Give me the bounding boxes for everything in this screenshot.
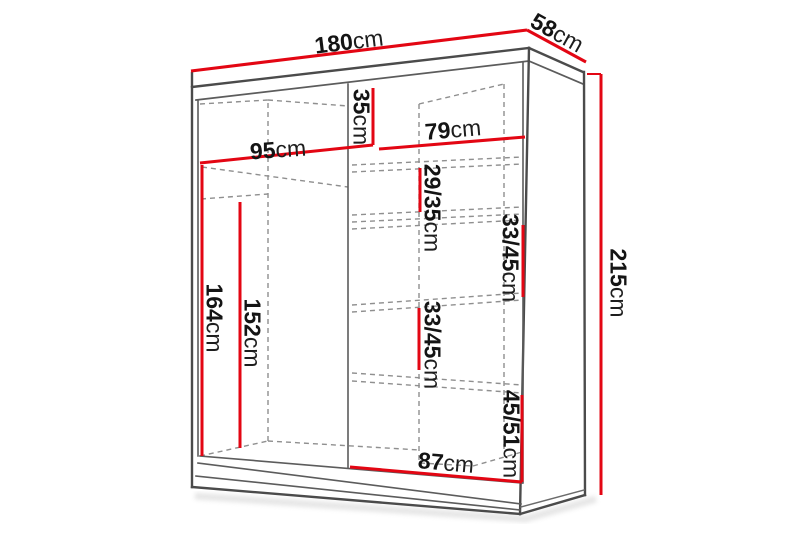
dim-label-shelf-gap-1: 29/35cm [421, 164, 444, 252]
dim-label-right-section-top-width: 79cm [424, 116, 482, 144]
dim-label-height: 215cm [607, 248, 630, 317]
dim-label-left-section-clear-height: 164cm [203, 283, 226, 352]
dim-label-left-section-width: 95cm [249, 137, 307, 164]
wardrobe-outline [192, 48, 585, 514]
dim-label-shelf-gap-4: 45/51cm [500, 390, 523, 478]
cabinet-shadow [195, 496, 596, 519]
dimension-lines [191, 30, 601, 495]
wardrobe-dimension-diagram: 180cm 58cm 215cm 95cm 35cm 79cm 164cm 15… [0, 0, 800, 533]
dim-label-shelf-gap-2: 33/45cm [499, 214, 522, 302]
diagram-linework [0, 0, 800, 533]
dim-label-top-compartment-height: 35cm [350, 89, 373, 145]
dim-label-right-section-bottom-width: 87cm [417, 449, 475, 477]
dim-label-hanging-space-height: 152cm [241, 298, 264, 367]
dim-label-shelf-gap-3: 33/45cm [421, 301, 444, 389]
